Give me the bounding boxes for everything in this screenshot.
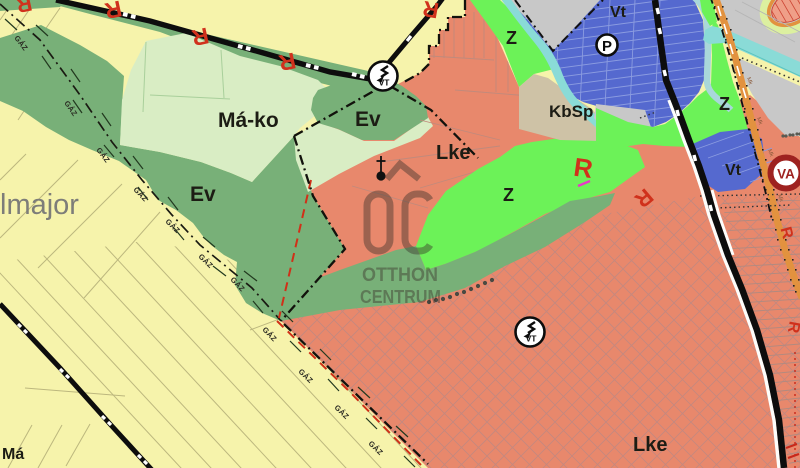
svg-text:Má: Má [2, 446, 24, 463]
svg-text:P: P [602, 38, 612, 55]
svg-text:Z: Z [719, 94, 730, 114]
svg-text:Lke: Lke [436, 142, 470, 164]
svg-text:VT: VT [379, 78, 391, 88]
svg-text:Ev: Ev [355, 108, 381, 131]
svg-text:Z: Z [506, 28, 517, 48]
svg-text:KbSp: KbSp [549, 102, 593, 121]
svg-text:Má-ko: Má-ko [218, 109, 279, 132]
svg-text:VA: VA [777, 167, 795, 182]
svg-text:Z: Z [503, 185, 514, 205]
svg-text:Vt: Vt [610, 4, 627, 21]
svg-text:Lke: Lke [633, 434, 667, 456]
svg-text:CENTRUM: CENTRUM [360, 287, 441, 307]
svg-text:VT: VT [526, 334, 538, 344]
svg-text:Vt: Vt [725, 162, 742, 179]
svg-text:OTTHON: OTTHON [362, 265, 438, 286]
svg-text:lmajor: lmajor [0, 189, 79, 221]
svg-text:Ev: Ev [190, 183, 216, 206]
